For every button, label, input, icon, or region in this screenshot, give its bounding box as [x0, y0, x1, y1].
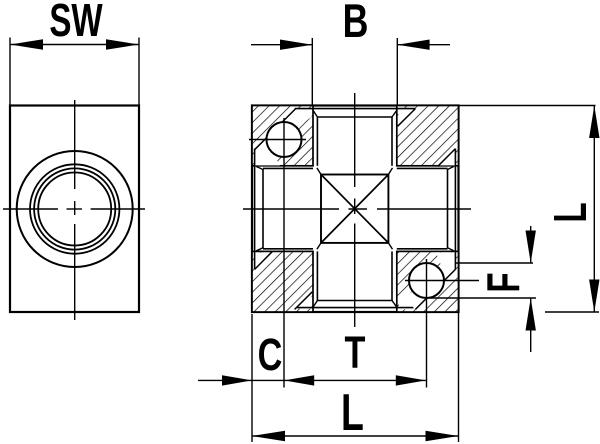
svg-text:L: L [546, 202, 596, 222]
svg-text:F: F [479, 272, 529, 292]
svg-text:C: C [258, 331, 283, 381]
svg-text:B: B [343, 0, 369, 47]
svg-text:SW: SW [49, 0, 102, 46]
svg-text:L: L [341, 383, 364, 442]
svg-text:T: T [345, 329, 366, 379]
